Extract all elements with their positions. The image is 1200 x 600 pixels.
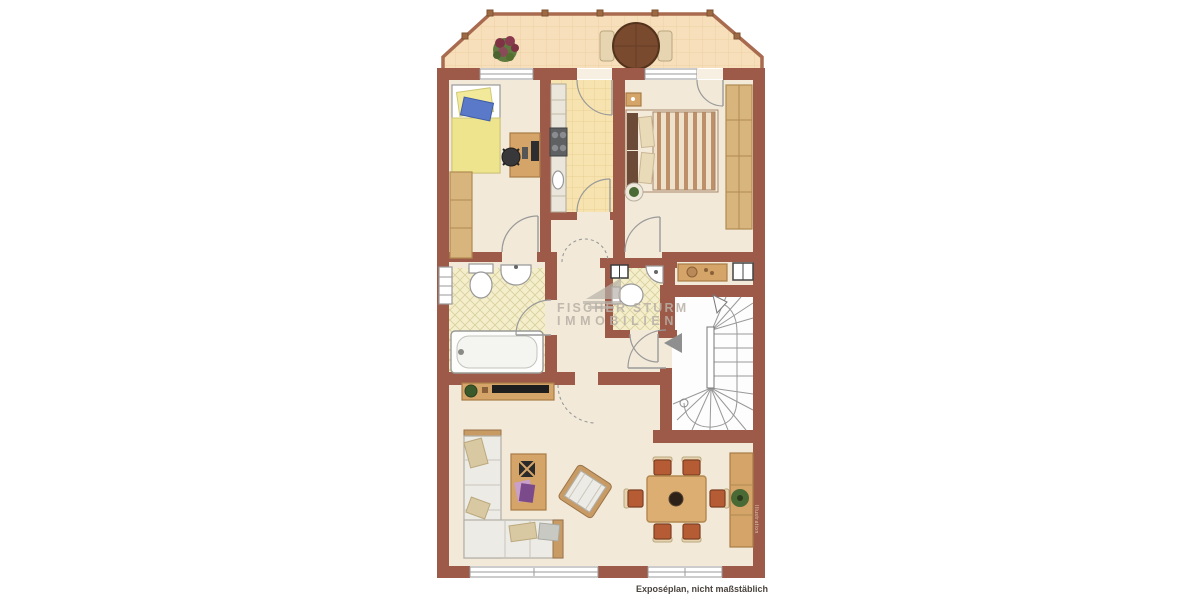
floor-plan-drawing (0, 0, 1200, 600)
pillow (638, 116, 654, 147)
tv-icon (492, 385, 549, 393)
kitchen-furniture (550, 84, 567, 212)
coffee-table (511, 454, 546, 510)
watermark-line1: FISCHER STURM (557, 301, 688, 315)
wardrobe-left (450, 172, 472, 258)
toilet-icon (469, 264, 493, 298)
disclaimer-note: Exposéplan, nicht maßstäblich (568, 584, 768, 594)
bedroom-plant-icon (625, 183, 643, 201)
stair-newel (707, 327, 714, 388)
table-bowl-icon (669, 492, 683, 506)
dining-chair (683, 524, 700, 539)
office-chair (502, 148, 520, 166)
dining-chair (654, 460, 671, 475)
bowl-icon (687, 267, 697, 277)
sideboard (730, 453, 753, 547)
tv-lowboard (462, 383, 554, 400)
dining-chair (654, 524, 671, 539)
dining-chair (710, 490, 725, 507)
balcony (443, 10, 762, 69)
balcony-chair-left (600, 31, 614, 61)
plant-icon (465, 385, 477, 397)
bed-blanket (452, 118, 500, 173)
floor-plan-canvas: FISCHER STURM IMMOBILIEN Exposéplan, nic… (0, 0, 1200, 600)
dining-chair (683, 460, 700, 475)
sofa-pillow (538, 523, 560, 541)
balcony-door-kitchen-threshold (577, 69, 612, 79)
pillow (638, 152, 654, 183)
vertical-fine-print: Illustration (753, 505, 759, 534)
bed-duvet (653, 112, 715, 190)
keyboard-icon (522, 147, 528, 159)
dining-chair (628, 490, 643, 507)
kitchen-sink (553, 171, 564, 189)
magazine (519, 483, 535, 503)
bathtub (451, 331, 543, 373)
headboard (627, 113, 638, 150)
balcony-chair-right (658, 31, 672, 61)
sofa-pillow (509, 522, 537, 541)
hallway-furniture (678, 263, 753, 281)
console-table (678, 264, 727, 281)
watermark-line2: IMMOBILIEN (557, 314, 678, 328)
balcony-door-bedroom-threshold (697, 69, 723, 79)
monitor-icon (531, 141, 539, 161)
